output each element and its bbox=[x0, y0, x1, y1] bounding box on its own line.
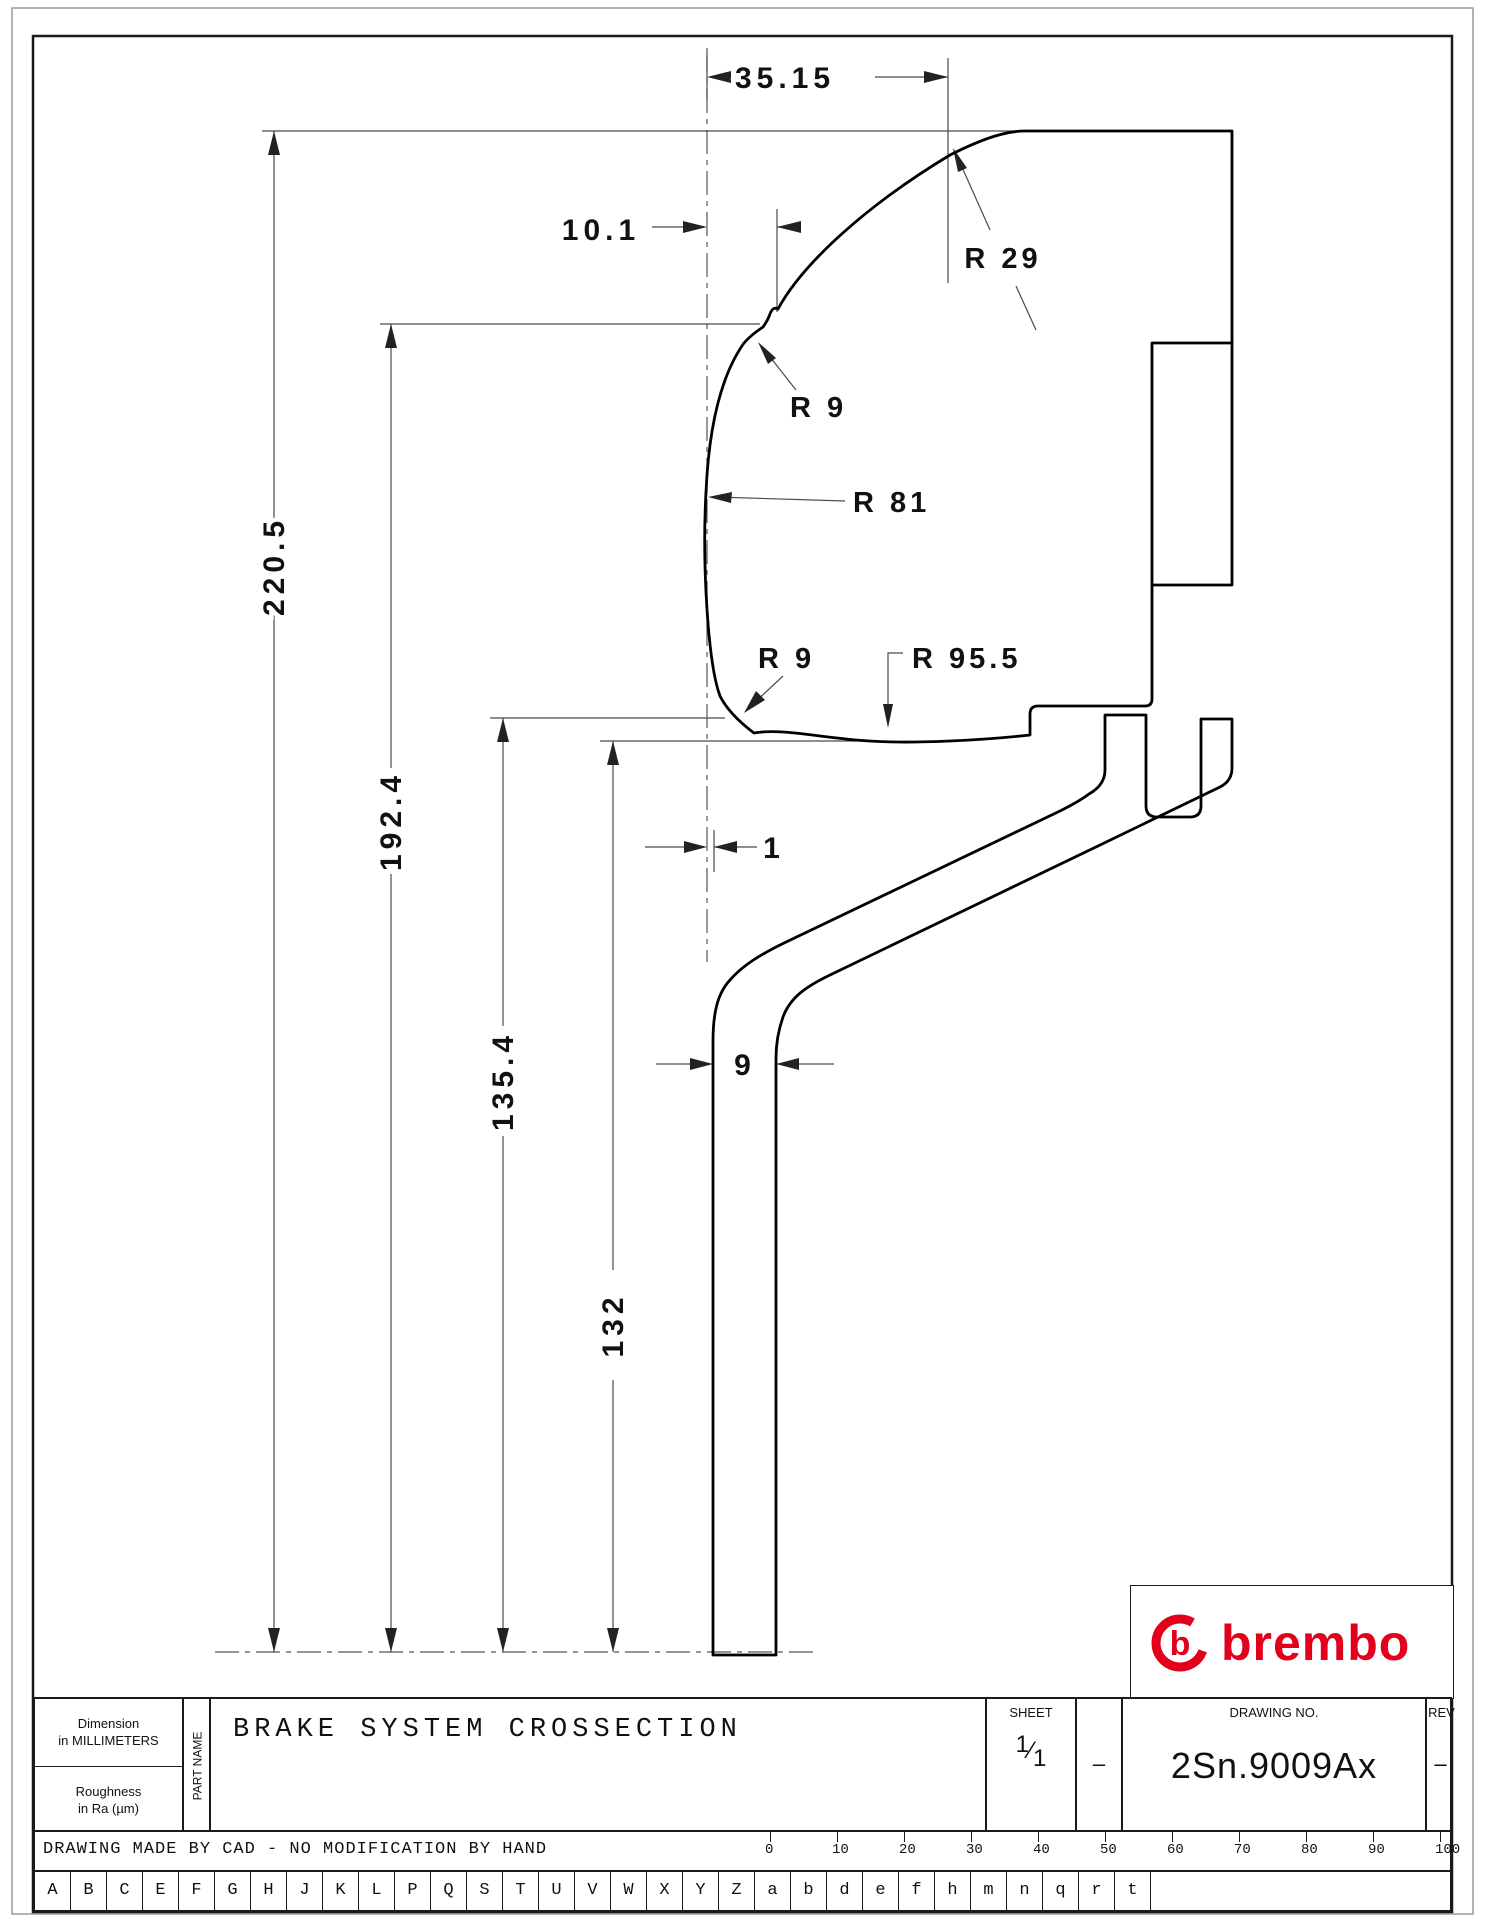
dimension-note-line1: Dimension bbox=[35, 1716, 182, 1732]
sheet-dash: – bbox=[1077, 1751, 1121, 1777]
ruler-tick-label: 40 bbox=[1038, 1832, 1105, 1842]
ruler-tick-label: 100 bbox=[1440, 1832, 1485, 1842]
sheet-num: 1 bbox=[1016, 1731, 1029, 1758]
zone-letter: Y bbox=[683, 1872, 719, 1910]
ruler-tick-label: 20 bbox=[904, 1832, 971, 1842]
zone-letter: q bbox=[1043, 1872, 1079, 1910]
logo-box: b brembo bbox=[1130, 1585, 1454, 1699]
ruler-tick-label: 0 bbox=[770, 1832, 837, 1842]
zone-letter: U bbox=[539, 1872, 575, 1910]
dim-height-disc-face: 132 bbox=[597, 1292, 630, 1357]
zone-letter: V bbox=[575, 1872, 611, 1910]
zone-letter: X bbox=[647, 1872, 683, 1910]
zone-letter: P bbox=[395, 1872, 431, 1910]
zone-letter: S bbox=[467, 1872, 503, 1910]
ruler-tick-label: 60 bbox=[1172, 1832, 1239, 1842]
zone-letter: W bbox=[611, 1872, 647, 1910]
drawing-no-label: DRAWING NO. bbox=[1123, 1705, 1425, 1720]
zone-letter: A bbox=[35, 1872, 71, 1910]
zone-letter: L bbox=[359, 1872, 395, 1910]
cad-note: DRAWING MADE BY CAD - NO MODIFICATION BY… bbox=[43, 1840, 547, 1859]
letters-row: ABCEFGHJKLPQSTUVWXYZabdefhmnqrt bbox=[33, 1872, 1452, 1912]
zone-letter: e bbox=[863, 1872, 899, 1910]
rev-cell: REV – bbox=[1425, 1699, 1454, 1834]
roughness-note-cell: Roughness in Ra (µm) bbox=[35, 1767, 182, 1834]
dim-disc-thickness: 9 bbox=[734, 1049, 756, 1082]
title-cell: BRAKE SYSTEM CROSSECTION bbox=[209, 1699, 985, 1834]
radius-r95-label: R 95.5 bbox=[912, 643, 1021, 675]
zone-letter: f bbox=[899, 1872, 935, 1910]
dimension-note-cell: Dimension in MILLIMETERS bbox=[35, 1699, 182, 1767]
zone-letter: C bbox=[107, 1872, 143, 1910]
sheet-label: SHEET bbox=[987, 1705, 1075, 1720]
dimension-note-line2: in MILLIMETERS bbox=[35, 1733, 182, 1749]
drawing-no-value: 2Sn.9009Ax bbox=[1123, 1745, 1425, 1787]
extension-lines bbox=[262, 55, 1024, 872]
radius-r81-label: R 81 bbox=[853, 487, 930, 519]
zone-letter: B bbox=[71, 1872, 107, 1910]
pad-rectangle bbox=[1152, 343, 1232, 585]
dimension-arrowheads bbox=[268, 71, 967, 1652]
rev-label: REV bbox=[1419, 1705, 1464, 1720]
zone-letter: Q bbox=[431, 1872, 467, 1910]
zone-letter: t bbox=[1115, 1872, 1151, 1910]
roughness-line1: Roughness bbox=[35, 1784, 182, 1800]
part-title: BRAKE SYSTEM CROSSECTION bbox=[233, 1715, 742, 1745]
zone-letter: G bbox=[215, 1872, 251, 1910]
part-name-label: PART NAME bbox=[191, 1719, 205, 1814]
zone-letter: h bbox=[935, 1872, 971, 1910]
radius-r29-label: R 29 bbox=[964, 243, 1041, 275]
drawing-no-cell: DRAWING NO. 2Sn.9009Ax bbox=[1121, 1699, 1425, 1834]
dim-height-total: 220.5 bbox=[258, 516, 291, 616]
ruler-tick-label: 70 bbox=[1239, 1832, 1306, 1842]
brembo-wordmark: brembo bbox=[1221, 1614, 1410, 1672]
dim-height-notch: 192.4 bbox=[375, 771, 408, 871]
ruler-tick-label: 30 bbox=[971, 1832, 1038, 1842]
sheet-dash-cell: – bbox=[1075, 1699, 1121, 1834]
part-outline-lower-claw bbox=[713, 715, 1232, 1655]
zone-letter: n bbox=[1007, 1872, 1043, 1910]
zone-letter: b bbox=[791, 1872, 827, 1910]
ruler-tick-label: 50 bbox=[1105, 1832, 1172, 1842]
dim-height-pad-face: 135.4 bbox=[487, 1031, 520, 1131]
radius-r9-upper-label: R 9 bbox=[790, 392, 847, 424]
roughness-line2: in Ra (µm) bbox=[35, 1801, 182, 1817]
zone-letter: a bbox=[755, 1872, 791, 1910]
dim-width-top: 35.15 bbox=[735, 62, 835, 95]
zone-letter: T bbox=[503, 1872, 539, 1910]
part-outline bbox=[705, 131, 1232, 1655]
ruler-tick-label: 80 bbox=[1306, 1832, 1373, 1842]
ruler-tick-label: 10 bbox=[837, 1832, 904, 1842]
zone-letter: J bbox=[287, 1872, 323, 1910]
zone-letter: d bbox=[827, 1872, 863, 1910]
zone-letter: m bbox=[971, 1872, 1007, 1910]
brembo-logo-icon: b bbox=[1149, 1612, 1211, 1674]
brembo-logo: b brembo bbox=[1149, 1612, 1410, 1674]
dim-gap-center: 1 bbox=[763, 832, 785, 865]
rev-value: – bbox=[1427, 1751, 1454, 1777]
sheet-cell: SHEET 1⁄1 bbox=[985, 1699, 1075, 1834]
radius-r9-lower-label: R 9 bbox=[758, 643, 815, 675]
sheet-den: 1 bbox=[1033, 1745, 1046, 1772]
zone-letter: Z bbox=[719, 1872, 755, 1910]
title-block: Dimension in MILLIMETERS Roughness in Ra… bbox=[33, 1697, 1452, 1832]
sheet-value: 1⁄1 bbox=[987, 1737, 1075, 1765]
zone-letter: E bbox=[143, 1872, 179, 1910]
zone-letter: K bbox=[323, 1872, 359, 1910]
drawing-sheet: 35.15 10.1 220.5 192.4 135.4 132 1 9 R 2… bbox=[0, 0, 1485, 1920]
zone-letter: H bbox=[251, 1872, 287, 1910]
scale-ruler: 0102030405060708090100 bbox=[770, 1832, 1485, 1842]
zone-letter: r bbox=[1079, 1872, 1115, 1910]
part-name-strip: PART NAME bbox=[182, 1699, 209, 1834]
ruler-tick-label: 90 bbox=[1373, 1832, 1440, 1842]
dim-offset-top: 10.1 bbox=[562, 214, 640, 247]
logo-glyph: b bbox=[1170, 1625, 1191, 1663]
zone-letter: F bbox=[179, 1872, 215, 1910]
zone-letters: ABCEFGHJKLPQSTUVWXYZabdefhmnqrt bbox=[35, 1872, 1151, 1910]
note-ruler-row: DRAWING MADE BY CAD - NO MODIFICATION BY… bbox=[33, 1832, 1452, 1872]
